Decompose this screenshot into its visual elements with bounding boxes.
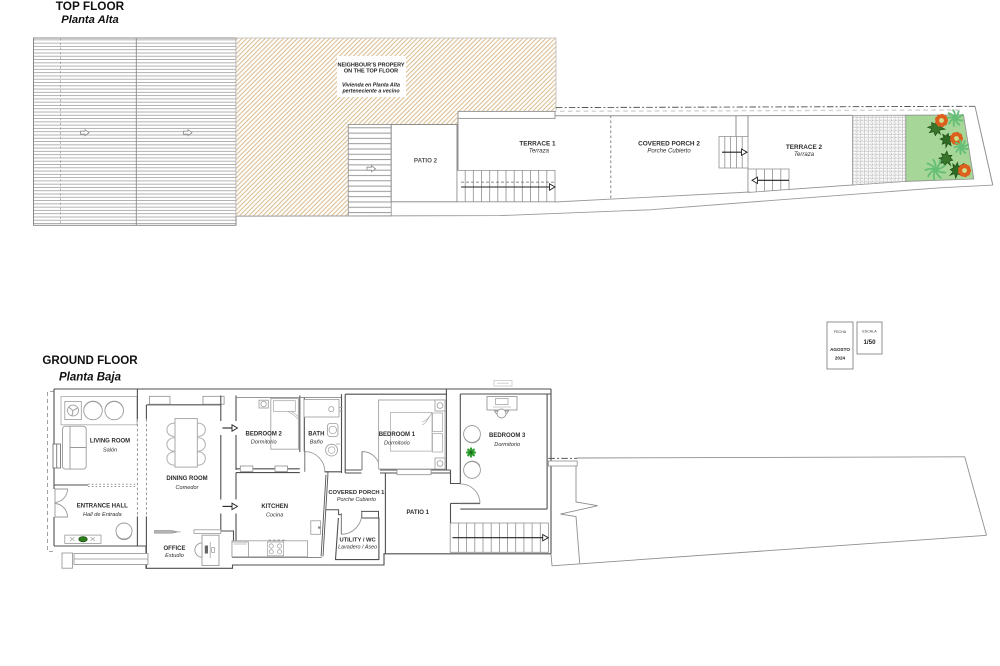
svg-text:FECHA: FECHA: [834, 330, 847, 334]
svg-text:Estudio: Estudio: [165, 553, 184, 559]
svg-text:2024: 2024: [835, 356, 846, 361]
svg-text:Baño: Baño: [310, 440, 323, 446]
svg-text:Terraza: Terraza: [794, 152, 815, 158]
svg-text:BEDROOM 3: BEDROOM 3: [489, 433, 526, 439]
svg-text:GROUND FLOOR: GROUND FLOOR: [42, 354, 138, 367]
svg-text:Hall de Entrada: Hall de Entrada: [83, 512, 122, 518]
svg-text:DINING ROOM: DINING ROOM: [166, 476, 207, 482]
svg-text:TERRACE 2: TERRACE 2: [786, 144, 823, 151]
svg-text:OFFICE: OFFICE: [164, 546, 186, 552]
svg-text:perteneciente a vecino: perteneciente a vecino: [341, 88, 400, 94]
svg-text:AGOSTO: AGOSTO: [830, 347, 850, 352]
svg-text:Porche Cubierto: Porche Cubierto: [337, 497, 376, 503]
svg-text:PATIO 1: PATIO 1: [406, 510, 429, 516]
svg-text:BATH: BATH: [308, 431, 324, 437]
svg-text:ESCALA: ESCALA: [862, 330, 877, 334]
svg-text:TOP FLOOR: TOP FLOOR: [56, 0, 125, 13]
svg-text:ON THE TOP FLOOR: ON THE TOP FLOOR: [344, 68, 398, 74]
svg-text:Dormitorio: Dormitorio: [384, 441, 410, 447]
svg-text:Comedor: Comedor: [175, 485, 199, 491]
svg-text:PATIO 2: PATIO 2: [414, 158, 438, 165]
svg-text:COVERED PORCH 2: COVERED PORCH 2: [638, 141, 700, 148]
svg-text:KITCHEN: KITCHEN: [261, 504, 288, 510]
svg-text:Cocina: Cocina: [266, 512, 283, 518]
svg-text:ENTRANCE HALL: ENTRANCE HALL: [77, 504, 128, 510]
svg-text:LIVING ROOM: LIVING ROOM: [90, 439, 130, 445]
svg-text:Dormitorio: Dormitorio: [494, 442, 520, 448]
svg-text:Lavadero / Aseo: Lavadero / Aseo: [338, 545, 377, 551]
svg-text:UTILITY / WC: UTILITY / WC: [339, 537, 376, 543]
svg-text:TERRACE 1: TERRACE 1: [519, 140, 556, 147]
svg-text:1/50: 1/50: [863, 339, 876, 346]
svg-text:BEDROOM 2: BEDROOM 2: [246, 431, 283, 437]
svg-text:Salón: Salón: [103, 448, 117, 454]
svg-text:BEDROOM 1: BEDROOM 1: [379, 432, 416, 438]
svg-text:Dormitorio: Dormitorio: [251, 440, 277, 446]
svg-text:Planta Baja: Planta Baja: [59, 372, 122, 384]
svg-text:COVERED PORCH 1: COVERED PORCH 1: [328, 490, 385, 496]
svg-text:Planta Alta: Planta Alta: [61, 14, 118, 26]
svg-text:Porche Cubierto: Porche Cubierto: [647, 149, 691, 155]
svg-text:Terraza: Terraza: [529, 148, 550, 154]
